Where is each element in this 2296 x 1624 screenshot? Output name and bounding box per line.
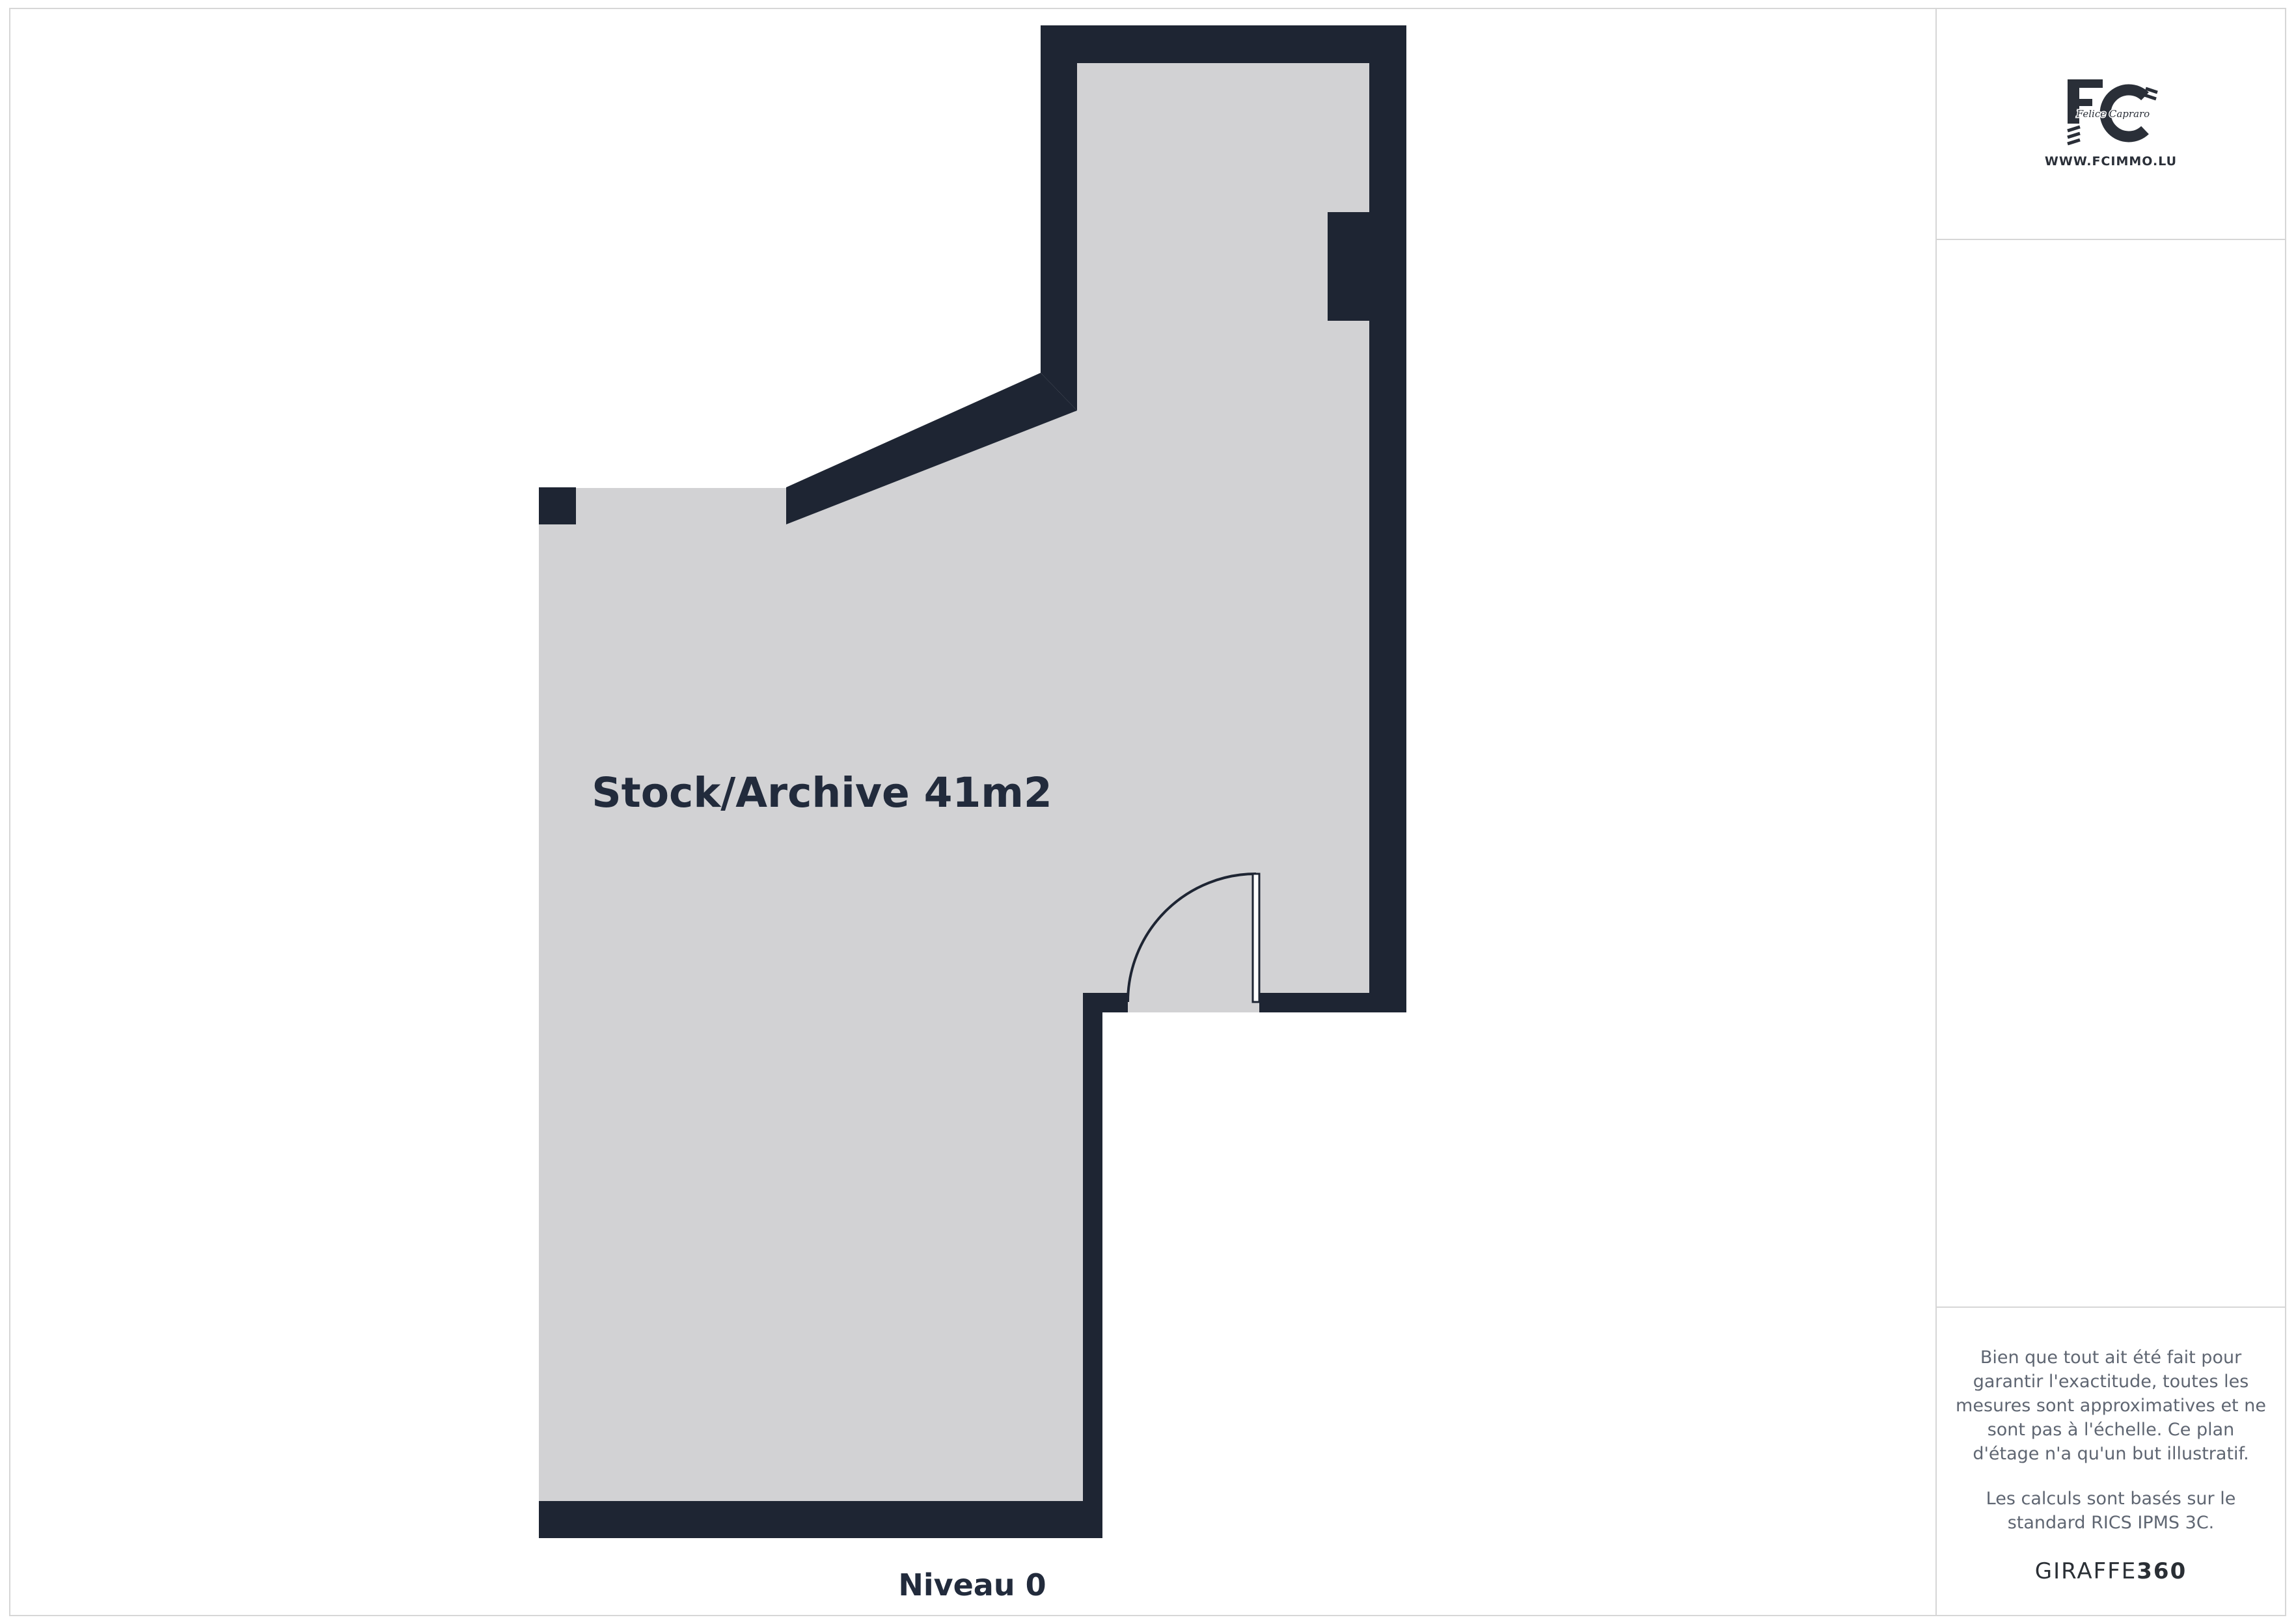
wall-right (1369, 25, 1406, 1012)
wall-bottom-right-of-door (1259, 993, 1406, 1012)
floor-plan: Stock/Archive 41m2 Niveau 0 (0, 0, 2296, 1624)
room-label: Stock/Archive 41m2 (592, 769, 1052, 817)
wall-pillar-top-left (539, 487, 576, 524)
level-label: Niveau 0 (898, 1567, 1046, 1603)
wall-top (1041, 25, 1406, 63)
wall-tower-left (1041, 25, 1077, 411)
door-leaf (1253, 874, 1259, 1002)
wall-right-notch (1328, 212, 1369, 321)
wall-bottom (539, 1501, 1102, 1538)
wall-lower-right (1083, 993, 1102, 1501)
